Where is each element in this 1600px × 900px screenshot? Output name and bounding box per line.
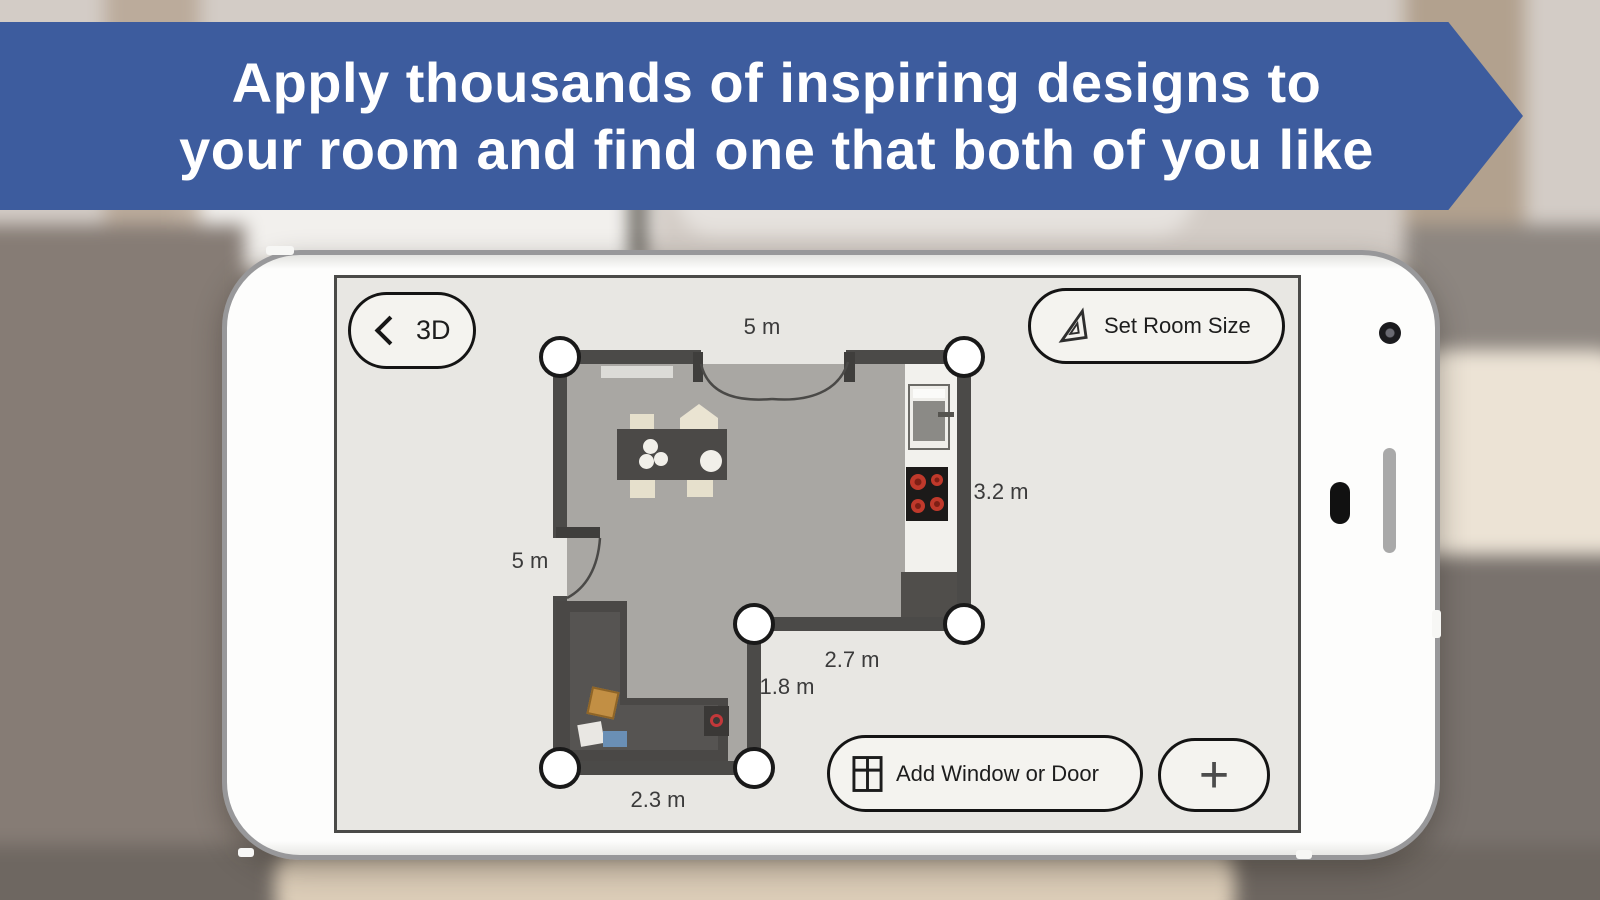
dining-table[interactable] [617, 429, 727, 480]
plate [643, 439, 658, 454]
corner-handle[interactable] [943, 336, 985, 378]
corner-handle[interactable] [733, 747, 775, 789]
stove-burners [906, 467, 948, 521]
fridge-detail [913, 401, 945, 441]
decor-item-detail [710, 714, 723, 727]
plate [639, 454, 654, 469]
add-button[interactable]: + [1158, 738, 1270, 812]
promo-banner-line2: your room and find one that both of you … [179, 116, 1374, 183]
set-square-icon [1053, 307, 1091, 345]
promo-banner: Apply thousands of inspiring designs to … [0, 22, 1523, 210]
plate [700, 450, 722, 472]
corner-handle[interactable] [943, 603, 985, 645]
pillow-white [577, 721, 604, 747]
dimension-label-inner-h: 2.7 m [824, 647, 879, 673]
add-window-or-door-button[interactable]: Add Window or Door [827, 735, 1143, 812]
fridge-handle [938, 412, 954, 417]
chevron-left-icon [375, 316, 405, 346]
window-icon [852, 755, 883, 793]
dimension-label-left: 5 m [512, 548, 549, 574]
plus-icon: + [1199, 745, 1229, 805]
add-window-or-door-label: Add Window or Door [896, 761, 1099, 787]
phone-edge-button [1432, 610, 1441, 638]
fridge[interactable] [908, 384, 950, 450]
chair[interactable] [687, 479, 713, 497]
dimension-label-inner-v: 1.8 m [759, 674, 814, 700]
corner-handle[interactable] [539, 336, 581, 378]
earpiece-slot [1330, 482, 1350, 524]
corner-handle[interactable] [733, 603, 775, 645]
back-3d-button[interactable]: 3D [348, 292, 476, 369]
phone-edge-button [266, 246, 294, 255]
set-room-size-button[interactable]: Set Room Size [1028, 288, 1285, 364]
phone-edge-button [1296, 850, 1312, 859]
dimension-label-right: 3.2 m [973, 479, 1028, 505]
set-room-size-label: Set Room Size [1104, 313, 1251, 339]
corner-handle[interactable] [539, 747, 581, 789]
screenshot-root: Apply thousands of inspiring designs to … [0, 0, 1600, 900]
camera-icon [1379, 322, 1401, 344]
promo-banner-line1: Apply thousands of inspiring designs to [232, 49, 1322, 116]
dimension-label-bottom: 2.3 m [630, 787, 685, 813]
pillow-orange [586, 686, 619, 719]
stove[interactable] [906, 467, 948, 521]
chair[interactable] [630, 479, 655, 498]
pillow-blue [603, 731, 627, 747]
back-3d-label: 3D [416, 315, 451, 346]
phone-edge-button [238, 848, 254, 857]
plate [654, 452, 668, 466]
decor-item[interactable] [704, 706, 729, 736]
fridge-detail [913, 389, 945, 398]
bg-blob [0, 225, 245, 900]
dimension-label-top: 5 m [744, 314, 781, 340]
bg-blob [275, 853, 1235, 900]
speaker-grille [1383, 448, 1396, 553]
bg-blob [1415, 350, 1600, 565]
